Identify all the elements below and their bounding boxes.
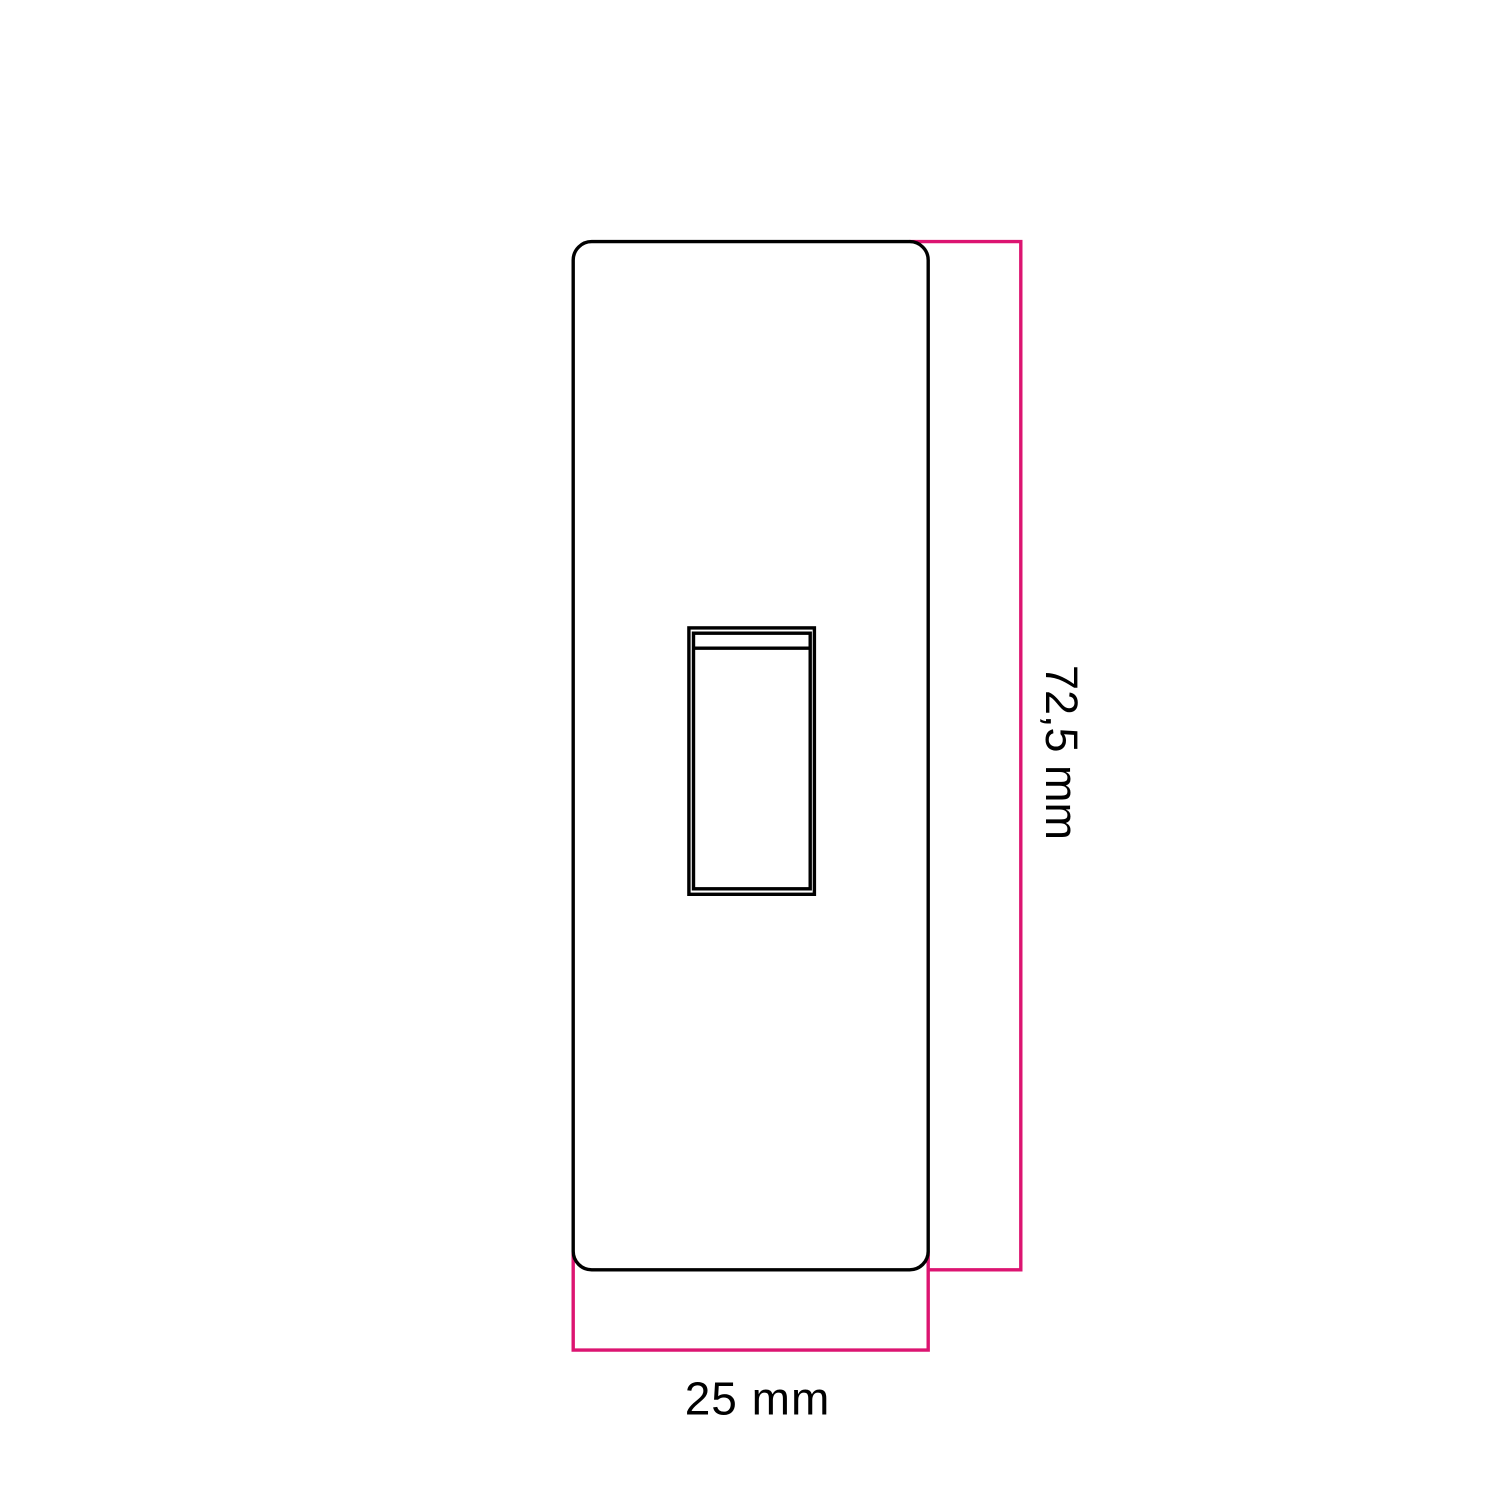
svg-text:72,5 mm: 72,5 mm bbox=[1036, 665, 1087, 840]
svg-text:25 mm: 25 mm bbox=[685, 1372, 831, 1424]
